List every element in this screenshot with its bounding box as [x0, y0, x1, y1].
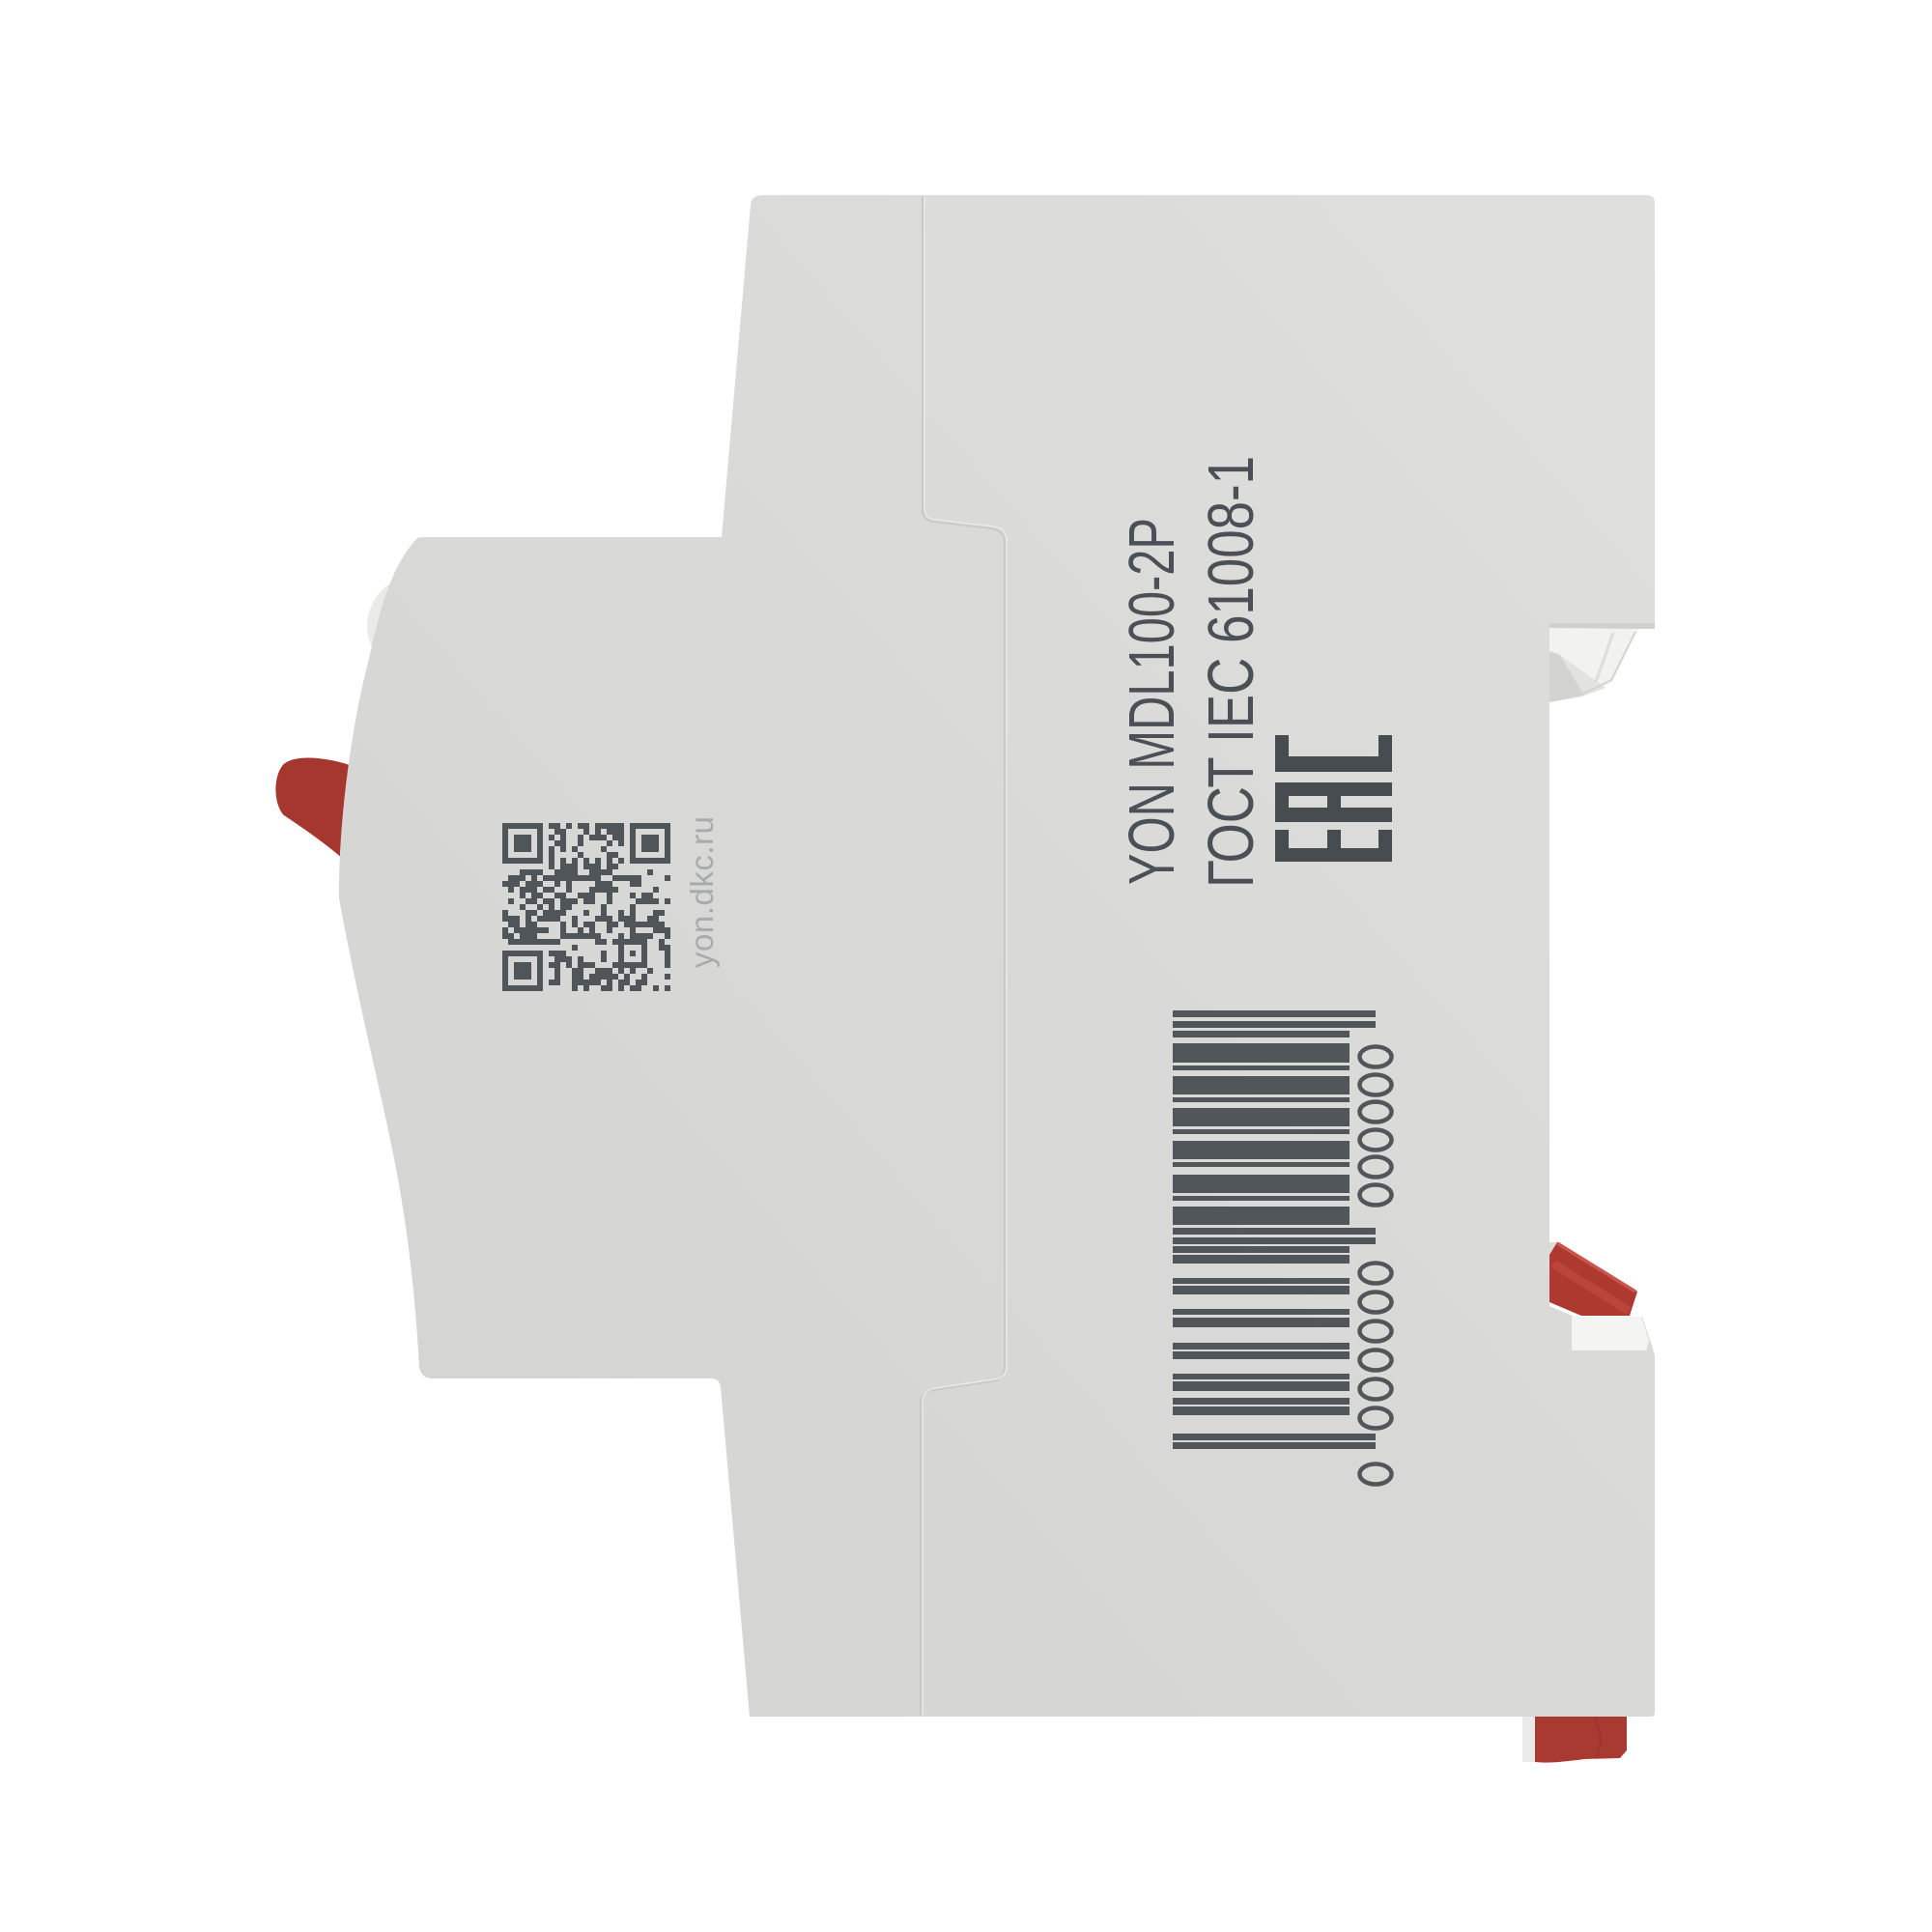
- svg-text:yon.dkc.ru: yon.dkc.ru: [684, 816, 720, 968]
- svg-text:YON MDL100-2P: YON MDL100-2P: [1116, 518, 1188, 885]
- svg-text:ГОСТ IEC 61008-1: ГОСТ IEC 61008-1: [1195, 456, 1267, 888]
